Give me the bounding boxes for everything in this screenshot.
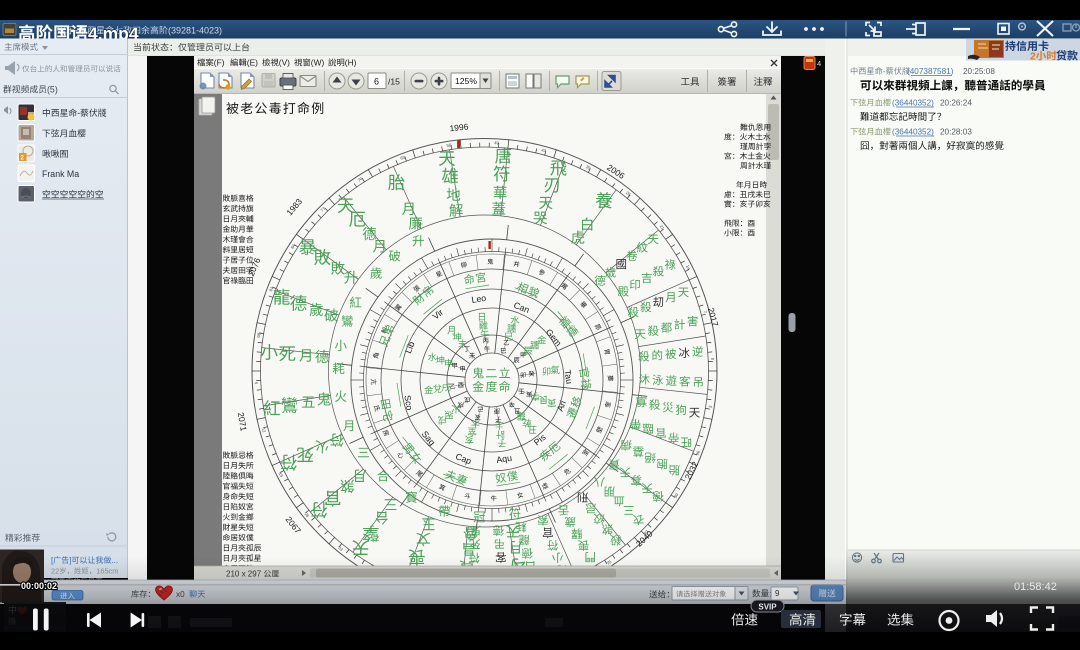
svg-text:(39281-4023): (39281-4023)	[168, 26, 222, 36]
svg-text:/15: /15	[388, 77, 400, 87]
svg-text:(36440352): (36440352)	[892, 128, 934, 137]
svg-text:(W): (W)	[311, 58, 325, 68]
svg-text:-: -	[77, 108, 80, 118]
svg-text:SVIP: SVIP	[758, 603, 777, 612]
svg-text:(E): (E)	[247, 58, 258, 68]
svg-text:6: 6	[374, 77, 379, 87]
svg-text:(F): (F)	[214, 58, 225, 68]
svg-text:20:28:03: 20:28:03	[940, 128, 972, 137]
svg-text:01:58:42: 01:58:42	[1014, 581, 1057, 593]
svg-text:Frank Ma: Frank Ma	[42, 169, 79, 179]
svg-text:(V): (V)	[279, 58, 290, 68]
svg-text:(407387581): (407387581)	[907, 67, 954, 76]
svg-text:4: 4	[817, 59, 821, 68]
svg-text:00:00:02: 00:00:02	[21, 581, 57, 591]
svg-text:(H): (H)	[345, 58, 357, 68]
svg-text:2: 2	[1030, 51, 1036, 63]
svg-text:(36440352): (36440352)	[892, 99, 934, 108]
svg-text:20:26:24: 20:26:24	[940, 99, 972, 108]
svg-text:1996: 1996	[449, 121, 469, 133]
svg-text:125%: 125%	[455, 76, 477, 86]
svg-text:-: -	[883, 67, 886, 76]
svg-text:20:25:08: 20:25:08	[963, 67, 995, 76]
svg-text:(5): (5)	[47, 85, 58, 95]
